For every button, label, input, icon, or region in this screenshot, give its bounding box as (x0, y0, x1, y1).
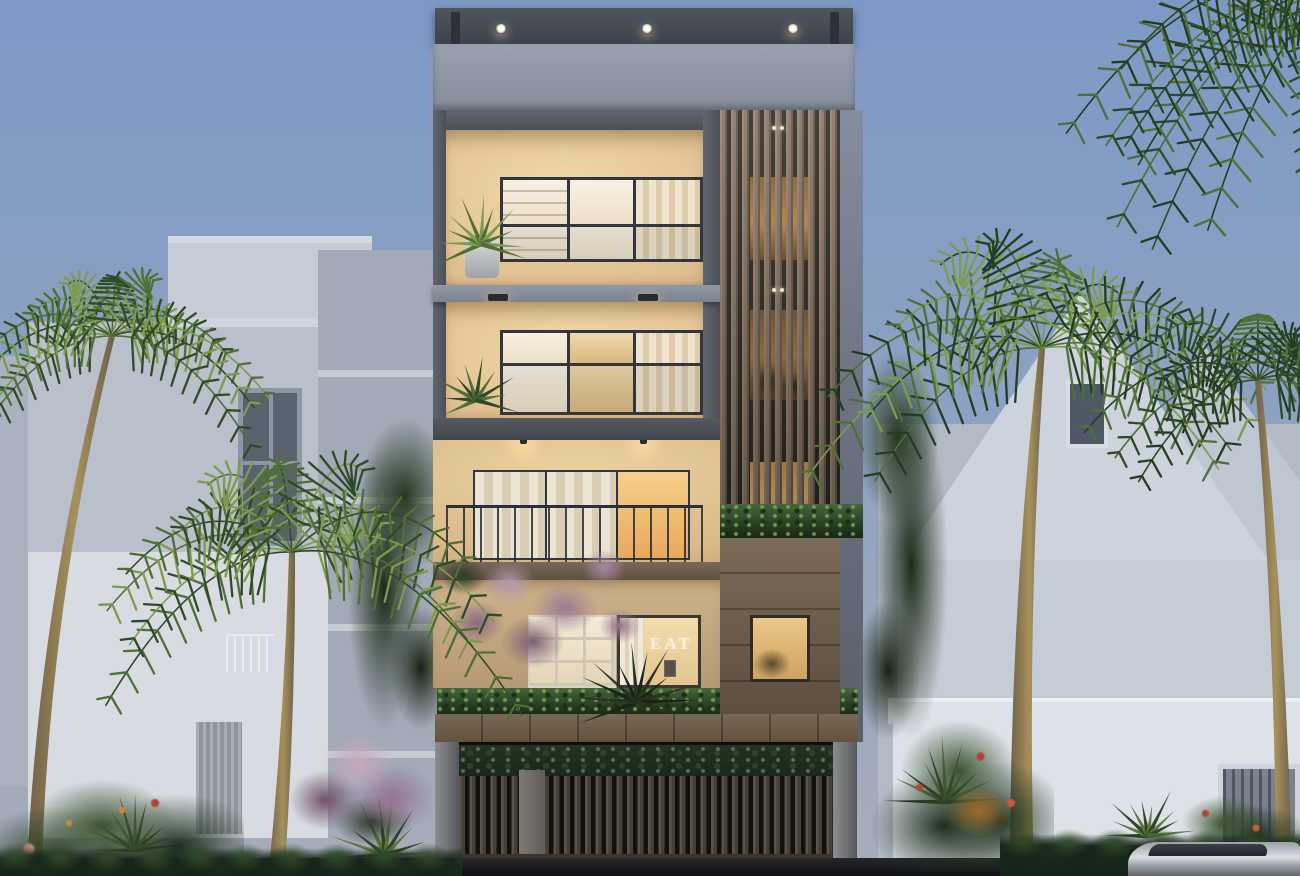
architectural-render-scene: EAT (0, 0, 1300, 876)
vegetation-layer (0, 0, 1300, 876)
